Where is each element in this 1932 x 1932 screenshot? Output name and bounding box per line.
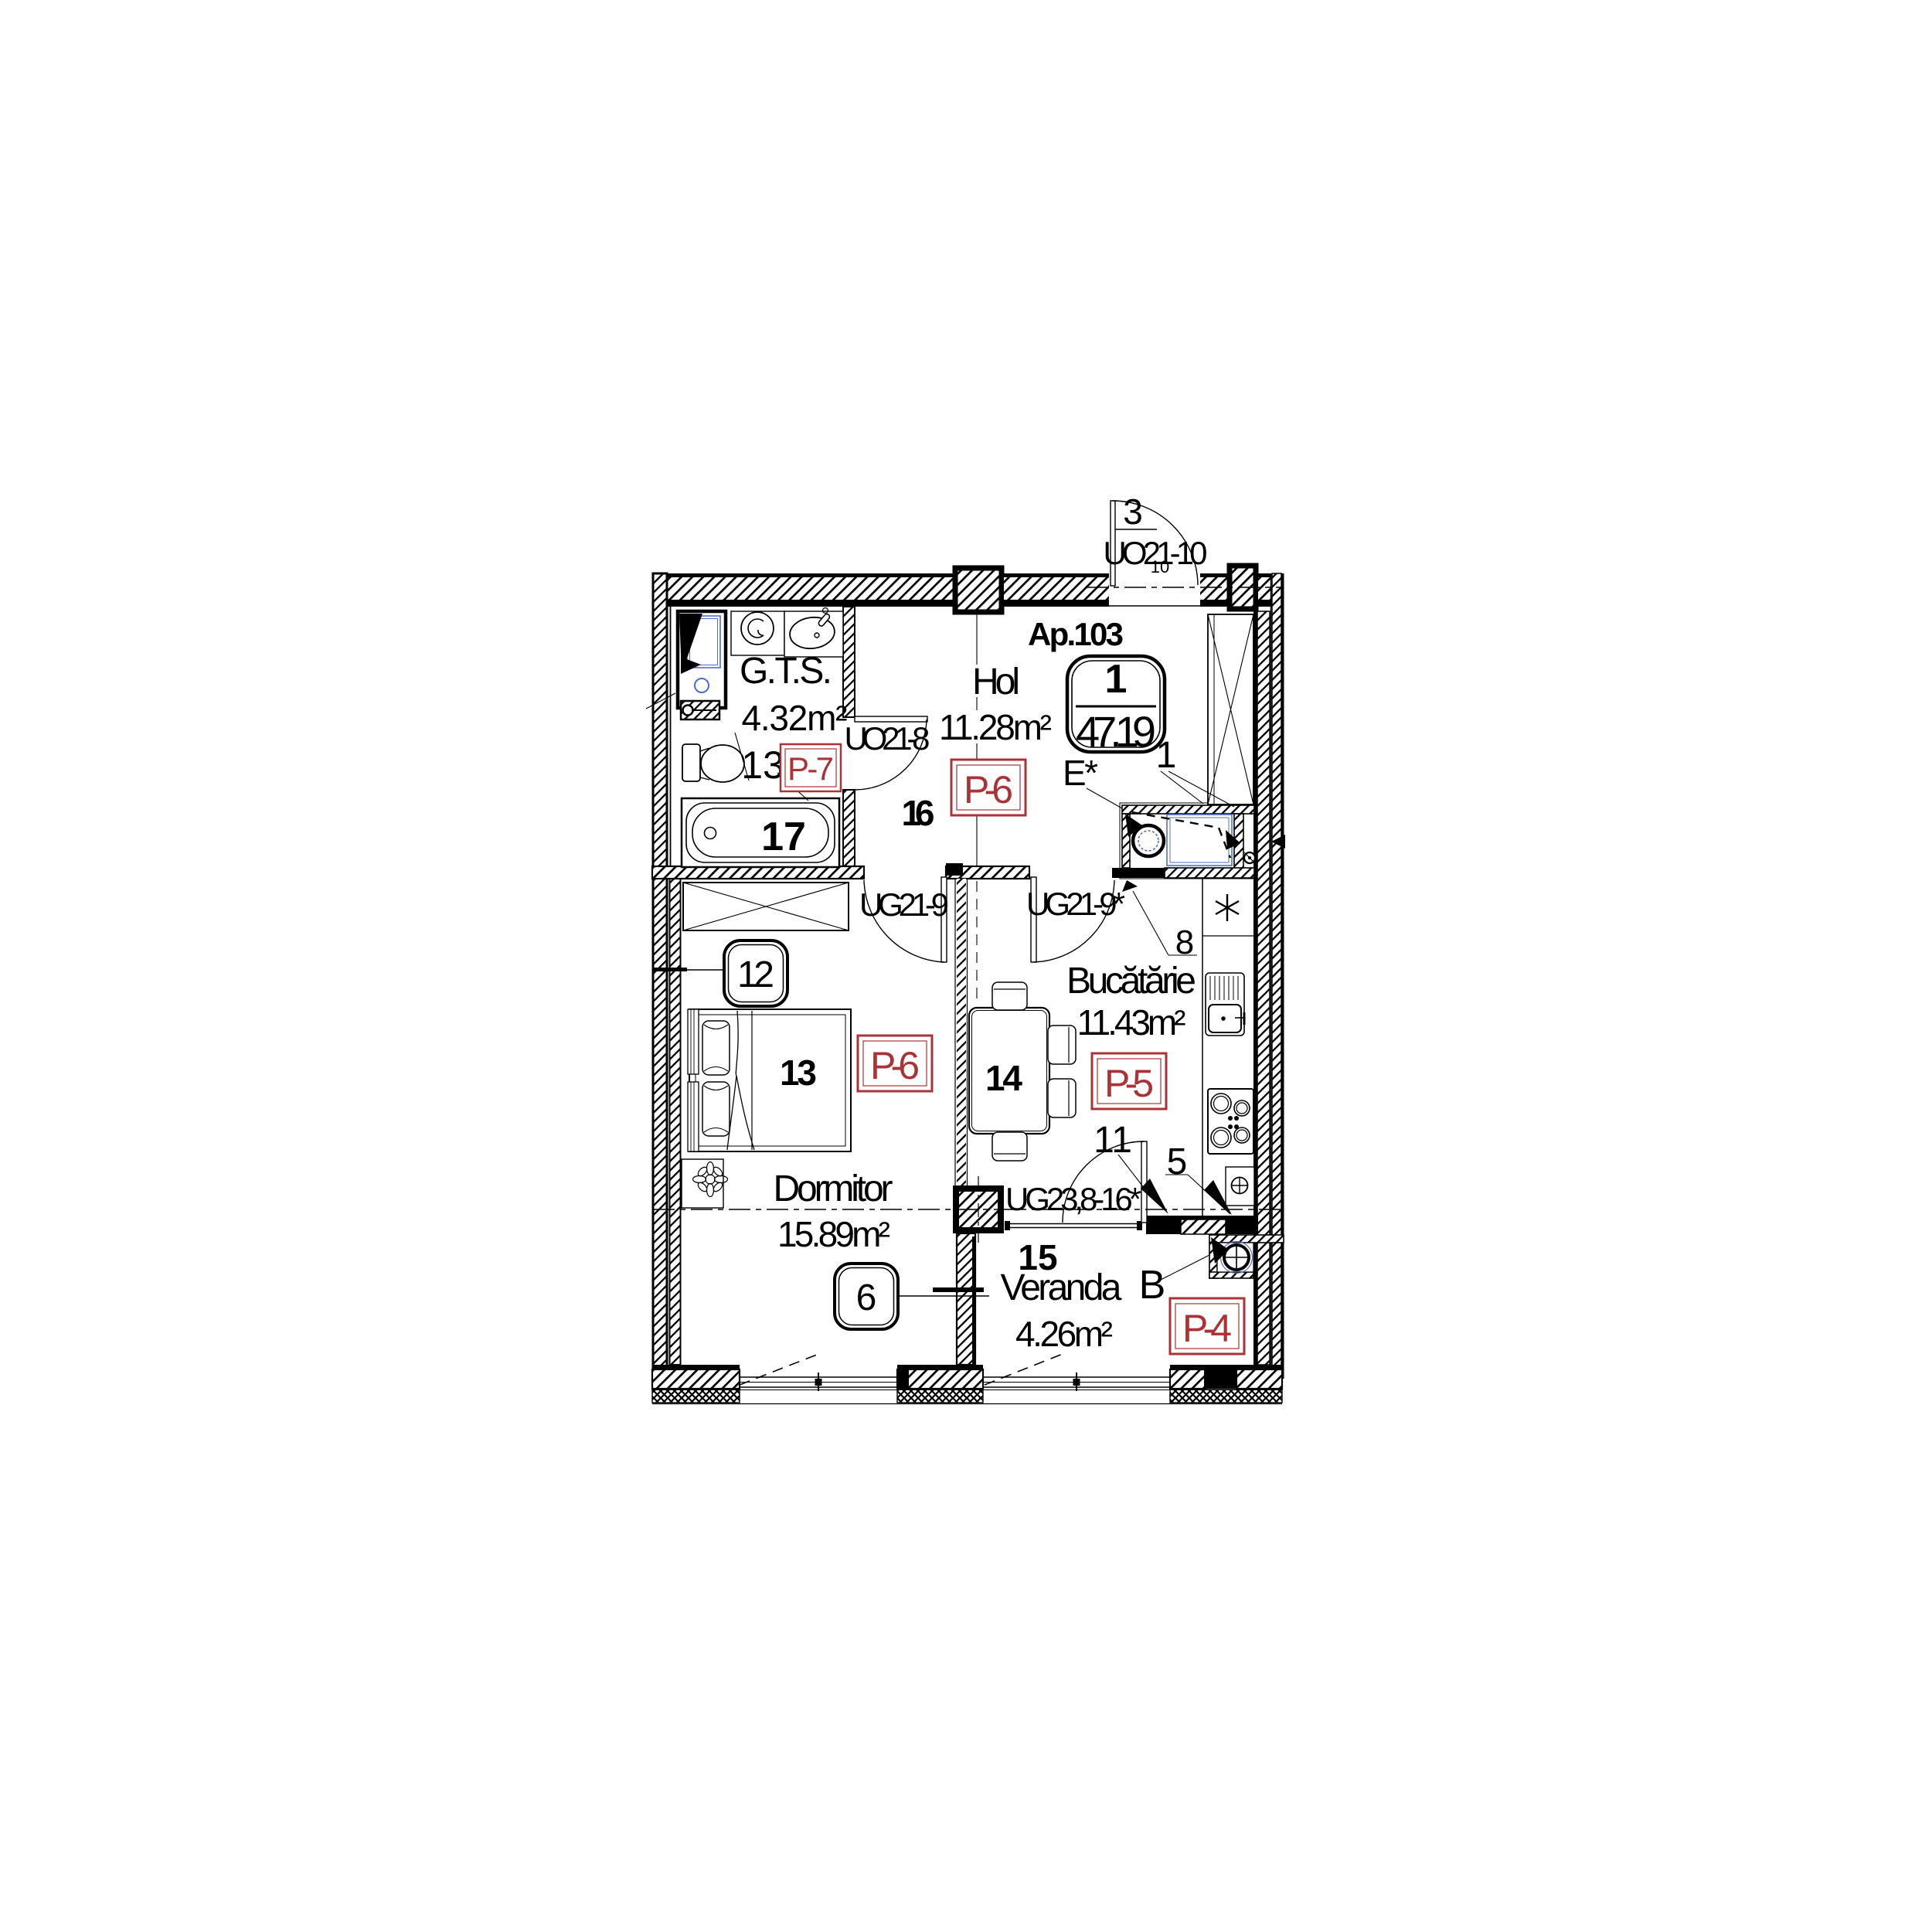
svg-text:Bucătărie: Bucătărie [1066, 961, 1196, 1002]
svg-text:5: 5 [1167, 1141, 1188, 1182]
svg-text:16: 16 [902, 793, 935, 833]
svg-text:17: 17 [761, 815, 806, 859]
svg-text:P-6: P-6 [870, 1044, 920, 1087]
svg-text:4.26m²: 4.26m² [1015, 1314, 1113, 1354]
svg-text:11: 11 [1094, 1120, 1132, 1161]
svg-text:G.T.S.: G.T.S. [740, 651, 832, 692]
svg-text:P-7: P-7 [787, 750, 834, 787]
svg-text:12: 12 [737, 954, 774, 995]
svg-text:13: 13 [741, 743, 784, 787]
svg-text:Hol: Hol [972, 662, 1020, 702]
svg-text:13: 13 [780, 1053, 817, 1093]
svg-text:1: 1 [1156, 735, 1177, 776]
svg-text:3: 3 [1123, 492, 1143, 532]
svg-text:P-6: P-6 [964, 768, 1013, 811]
svg-text:Ap.103: Ap.103 [1028, 616, 1124, 652]
svg-text:P-4: P-4 [1182, 1307, 1232, 1350]
svg-text:UG23,8-16*: UG23,8-16* [1005, 1181, 1141, 1217]
svg-text:UO21-10: UO21-10 [1104, 535, 1208, 571]
svg-text:Veranda: Veranda [1001, 1267, 1122, 1308]
svg-text:6: 6 [856, 1277, 877, 1318]
svg-text:15.89m²: 15.89m² [777, 1214, 890, 1254]
svg-text:4.32m²: 4.32m² [742, 698, 848, 738]
svg-text:P-5: P-5 [1104, 1062, 1154, 1105]
svg-text:UG21-9: UG21-9 [859, 886, 949, 923]
svg-text:1: 1 [1105, 657, 1128, 702]
svg-text:Dormitor: Dormitor [774, 1168, 893, 1209]
svg-text:UG21-9*: UG21-9* [1026, 886, 1125, 922]
svg-text:11.43m²: 11.43m² [1077, 1002, 1186, 1043]
svg-text:11.28m²: 11.28m² [939, 707, 1052, 747]
svg-text:B: B [1139, 1263, 1166, 1308]
svg-text:14: 14 [985, 1058, 1022, 1098]
svg-text:8: 8 [1175, 923, 1194, 961]
svg-text:UO21-8: UO21-8 [845, 720, 930, 757]
svg-text:E*: E* [1063, 753, 1098, 793]
svg-text:47.19: 47.19 [1076, 707, 1156, 756]
